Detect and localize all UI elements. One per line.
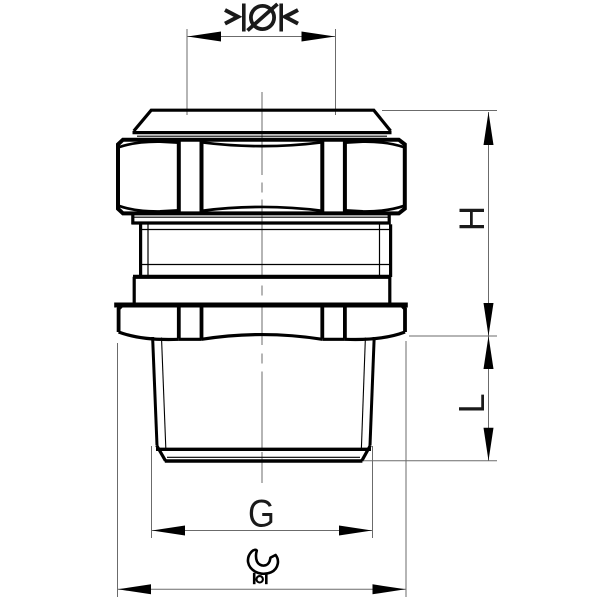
svg-text:G: G bbox=[248, 490, 275, 535]
svg-text:H: H bbox=[453, 206, 492, 231]
svg-text:L: L bbox=[451, 393, 492, 413]
